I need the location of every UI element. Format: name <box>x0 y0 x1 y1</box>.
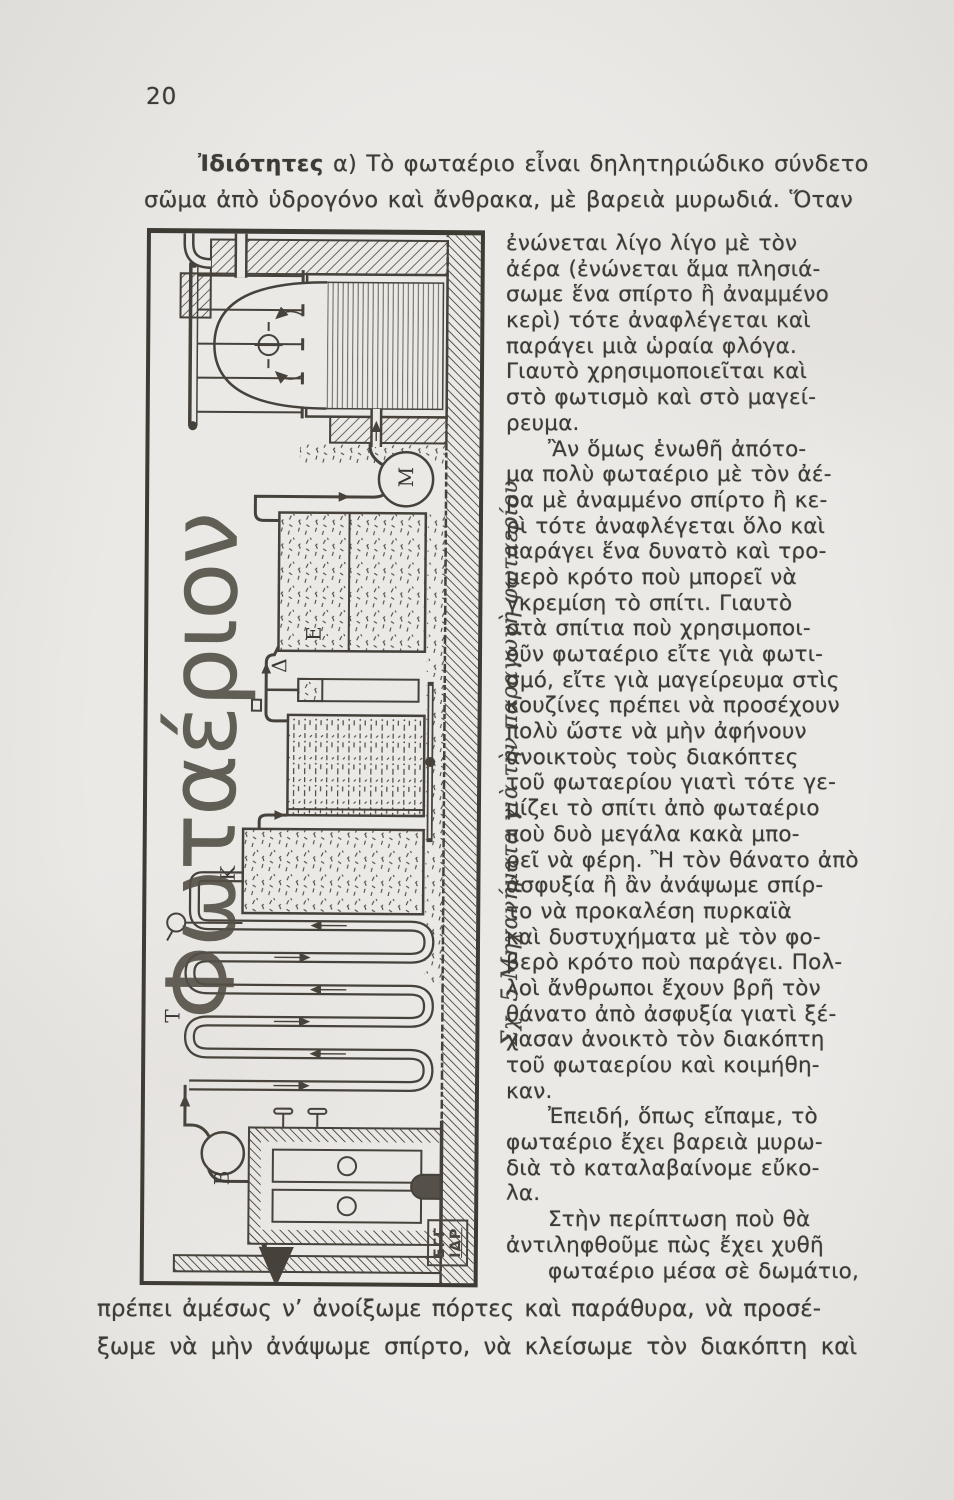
text-line: μίζει τὸ σπίτι ἀπὸ φωταέριο <box>506 796 930 822</box>
figure-frame: B T K Δ E M Φωταέριον ΕΓΓ ΙΔΡ <box>140 228 485 1287</box>
text-line: ἐνώνεται λίγο λίγο μὲ τὸν <box>506 231 930 257</box>
bottom-line-1: πρέπει ἀμέσως ν’ ἀνοίξωμε πόρτες καὶ παρ… <box>97 1291 939 1329</box>
text-line: κουζίνες πρέπει νὰ προσέχουν <box>506 693 930 719</box>
text-line: χασαν ἀνοικτὸ τὸν διακόπτη <box>506 1027 930 1053</box>
intro-lead-word: Ἰδιότητες <box>198 151 324 177</box>
text-line: παράγει μιὰ ὡραία φλόγα. <box>506 334 930 360</box>
text-line: ἀέρα (ἐνώνεται ἅμα πλησιά- <box>506 257 930 283</box>
intro-line-2: σῶμα ἀπὸ ὑδρογόνο καὶ ἄνθρακα, μὲ βαρειὰ… <box>144 182 876 218</box>
text-line: ἀνοικτοὺς τοὺς διακόπτες <box>506 745 930 771</box>
text-line: Ἂν ὅμως ἑνωθῆ ἀπότο- <box>506 437 930 463</box>
text-line: λα. <box>506 1181 930 1207</box>
text-line: τοῦ φωταερίου γιατὶ τότε γε- <box>506 770 930 796</box>
text-line: σωμε ἕνα σπίρτο ἢ ἀναμμένο <box>506 282 930 308</box>
label-washer: B <box>210 1171 234 1186</box>
text-line: διὰ τὸ καταλαβαίνομε εὔκο- <box>506 1156 930 1182</box>
label-valve-column: Δ <box>267 658 291 673</box>
text-line: βερὸ κρότο ποὺ παράγει. Πολ- <box>506 950 930 976</box>
intro-line-1-rest: α) Τὸ φωταέριο εἶναι δηλητηριώδικο σύνδε… <box>324 151 869 177</box>
bottom-paragraph: πρέπει ἀμέσως ν’ ἀνοίξωμε πόρτες καὶ παρ… <box>97 1291 939 1366</box>
text-line: ρευμα. <box>506 411 930 437</box>
text-line: ἀντιληφθοῦμε πὼς ἔχει χυθῆ <box>506 1233 930 1259</box>
text-line: φωταέριο μέσα σὲ δωμάτιο, <box>506 1259 930 1285</box>
text-line: ποὺ δυὸ μεγάλα κακὰ μπο- <box>506 822 930 848</box>
text-line: παράγει ἕνα δυνατὸ καὶ τρο- <box>506 539 930 565</box>
text-line: στὰ σπίτια ποὺ χρησιμοποι- <box>506 616 930 642</box>
bottom-line-2: ξωμε νὰ μὴν ἀνάψωμε σπίρτο, νὰ κλείσωμε … <box>97 1329 939 1367</box>
text-line: κερὶ) τότε ἀναφλέγεται καὶ <box>506 308 930 334</box>
text-line: καὶ δυστυχήματα μὲ τὸν φο- <box>506 925 930 951</box>
text-line: Στὴν περίπτωση ποὺ θὰ <box>506 1207 930 1233</box>
figure-vertical-title: Φωταέριον <box>147 513 260 1019</box>
text-line: ρεῖ νὰ φέρη. Ἢ τὸν θάνατο ἀπὸ <box>506 848 930 874</box>
text-line: Ἐπειδή, ὅπως εἴπαμε, τὸ <box>506 1104 930 1130</box>
label-pot: M <box>394 467 418 488</box>
text-line: καν. <box>506 1079 930 1105</box>
stamp-line-2: ΙΔΡ <box>448 1227 464 1259</box>
right-text-column: ἐνώνεται λίγο λίγο μὲ τὸνἀέρα (ἐνώνεται … <box>506 231 930 1284</box>
text-line: ρὶ τότε ἀναφλέγεται ὅλο καὶ <box>506 514 930 540</box>
text-line: ρα μὲ ἀναμμένο σπίρτο ἢ κε- <box>506 488 930 514</box>
text-line: μερὸ κρότο ποὺ μπορεῖ νὰ <box>506 565 930 591</box>
text-line: σμό, εἴτε γιὰ μαγείρευμα στὶς <box>506 668 930 694</box>
stamp-line-1: ΕΓΓ <box>432 1227 448 1259</box>
page-number: 20 <box>146 84 177 110</box>
label-purifier: E <box>302 626 326 641</box>
intro-paragraph: Ἰδιότητες α) Τὸ φωταέριο εἶναι δηλητηριώ… <box>144 146 876 218</box>
text-line: το νὰ προκαλέση πυρκαϊὰ <box>506 899 930 925</box>
text-line: ἀσφυξία ἢ ἂν ἀνάψωμε σπίρ- <box>506 873 930 899</box>
text-line: στὸ φωτισμὸ καὶ στὸ μαγεί- <box>506 385 930 411</box>
text-line: γκρεμίση τὸ σπίτι. Γιαυτὸ <box>506 591 930 617</box>
text-line: φωταέριο ἔχει βαρειὰ μυρω- <box>506 1130 930 1156</box>
text-line: οῦν φωταέριο εἴτε γιὰ φωτι- <box>506 642 930 668</box>
text-line: θάνατο ἀπὸ ἀσφυξία γιατὶ ξέ- <box>506 1002 930 1028</box>
text-line: τοῦ φωταερίου καὶ κοιμήθη- <box>506 1053 930 1079</box>
text-line: πολὺ ὥστε νὰ μὴν ἀφήνουν <box>506 719 930 745</box>
library-stamp: ΕΓΓ ΙΔΡ <box>427 1219 468 1267</box>
text-line: Γιαυτὸ χρησιμοποιεῖται καὶ <box>506 359 930 385</box>
text-line: μα πολὺ φωταέριο μὲ τὸν ἀέ- <box>506 462 930 488</box>
text-line: λοὶ ἄνθρωποι ἔχουν βρῆ τὸν <box>506 976 930 1002</box>
intro-line-1: Ἰδιότητες α) Τὸ φωταέριο εἶναι δηλητηριώ… <box>144 146 876 182</box>
